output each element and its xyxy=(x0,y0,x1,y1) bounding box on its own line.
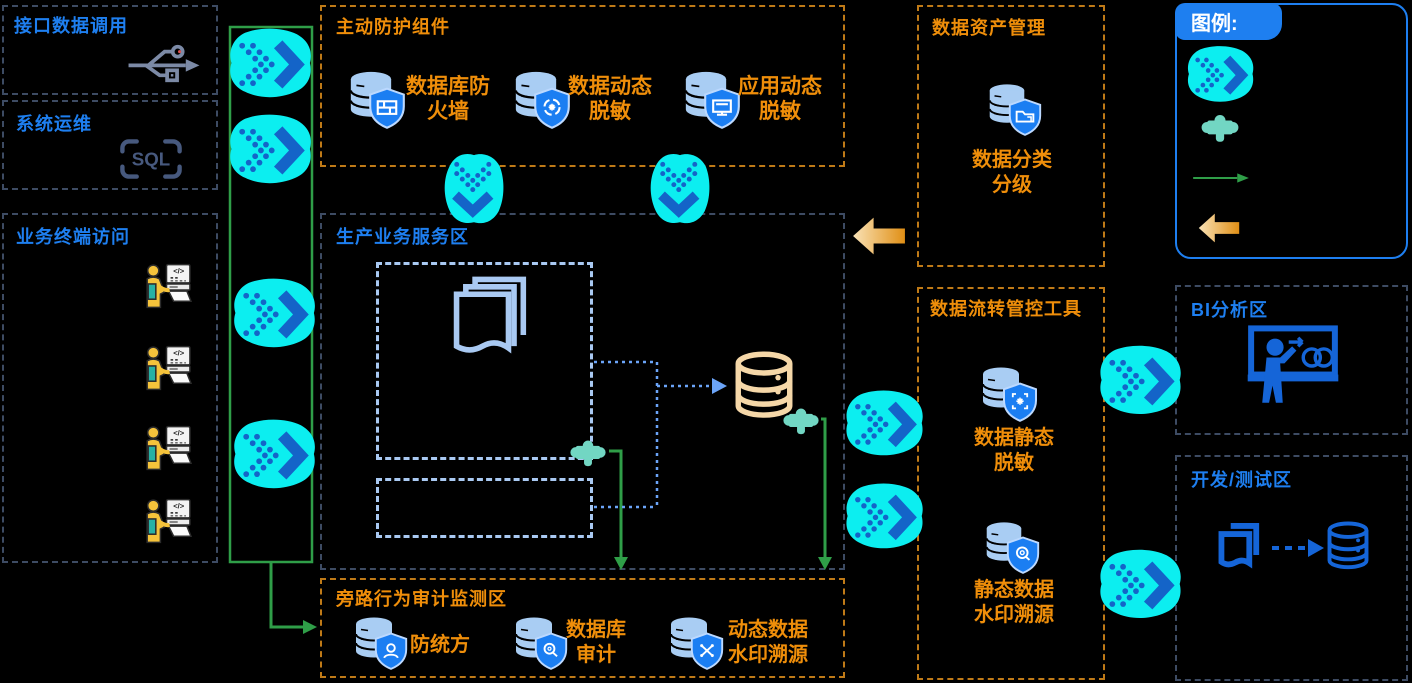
terminal-user-icon xyxy=(138,260,194,314)
audit-item-label: 防统方 xyxy=(402,633,478,658)
db-shield-starframe-icon xyxy=(1000,382,1040,422)
plugin-puzzle-icon xyxy=(566,430,610,474)
audit-item-label: 动态数据水印溯源 xyxy=(716,618,820,668)
green-audit-connectors xyxy=(271,419,825,627)
flow-arrow-icon xyxy=(227,113,315,185)
database-icon xyxy=(1320,518,1376,576)
plugin-puzzle-icon xyxy=(1194,104,1246,150)
flow-arrow-icon xyxy=(1186,44,1256,104)
db-shield-folder-icon xyxy=(1006,98,1044,136)
flow-arrow-icon xyxy=(229,418,321,490)
flow-item-label: 静态数据水印溯源 xyxy=(958,578,1070,628)
flow-item-label: 数据静态脱敏 xyxy=(962,426,1066,476)
plugin-puzzle-icon xyxy=(779,398,823,442)
sql-icon xyxy=(118,136,184,182)
flow-arrow-icon xyxy=(842,482,928,550)
document-icon xyxy=(1211,518,1269,578)
terminal-user-icon xyxy=(138,422,194,476)
protection-item-label: 应用动态脱敏 xyxy=(732,74,828,124)
terminal-user-icon xyxy=(138,342,194,396)
audit-item-label: 数据库审计 xyxy=(558,618,634,668)
usb-icon xyxy=(122,33,206,89)
bi-presentation-icon xyxy=(1246,323,1340,409)
protection-item-label: 数据动态脱敏 xyxy=(562,74,658,124)
protection-item-label: 数据库防火墙 xyxy=(400,74,496,124)
flow-arrow-down-icon xyxy=(643,152,717,226)
orange-arrow-icon xyxy=(852,215,906,257)
flow-arrow-down-icon xyxy=(437,152,511,226)
asset-item-label: 数据分类分级 xyxy=(960,148,1064,198)
db-shield-disksearch-icon xyxy=(1004,536,1042,574)
green-arrow-icon xyxy=(1192,168,1250,188)
documents-stack-icon xyxy=(438,272,540,374)
flow-arrow-icon xyxy=(1098,546,1184,622)
flow-arrow-icon xyxy=(842,389,928,457)
architecture-diagram: SQL </> xyxy=(0,0,1412,683)
flow-arrow-icon xyxy=(1098,342,1184,418)
orange-arrow-icon xyxy=(1196,212,1242,244)
terminal-user-icon xyxy=(138,495,194,549)
flow-arrow-icon xyxy=(229,277,321,349)
flow-arrow-icon xyxy=(227,27,315,99)
blue-db-connectors xyxy=(594,362,712,507)
